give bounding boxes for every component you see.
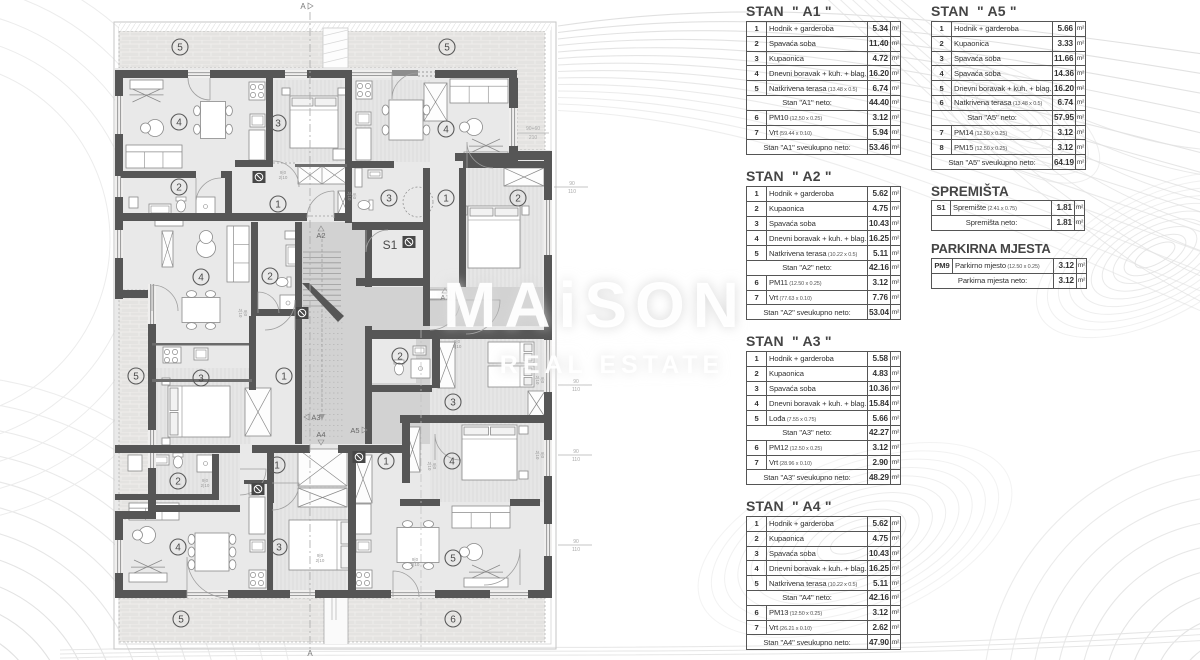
svg-text:1: 1 (274, 461, 280, 472)
svg-text:A2: A2 (316, 231, 325, 240)
svg-text:2: 2 (267, 272, 273, 283)
svg-text:5: 5 (444, 43, 450, 54)
svg-text:4: 4 (443, 125, 449, 136)
svg-text:REAL ESTATE: REAL ESTATE (500, 351, 724, 379)
svg-text:5: 5 (133, 372, 139, 383)
svg-text:2|10: 2|10 (279, 175, 288, 180)
svg-text:110: 110 (572, 547, 580, 553)
svg-text:A5: A5 (350, 426, 359, 435)
svg-text:3: 3 (198, 374, 204, 385)
svg-text:110: 110 (572, 387, 580, 393)
svg-text:2|10: 2|10 (238, 309, 243, 318)
svg-text:S1: S1 (383, 238, 398, 252)
svg-text:3: 3 (275, 119, 281, 130)
svg-text:3: 3 (450, 398, 456, 409)
svg-text:110: 110 (572, 457, 580, 463)
svg-text:1: 1 (275, 200, 281, 211)
svg-text:A3: A3 (311, 413, 320, 422)
svg-text:110: 110 (568, 189, 576, 195)
svg-text:3: 3 (276, 543, 282, 554)
svg-text:3: 3 (386, 194, 392, 205)
svg-text:4: 4 (198, 273, 204, 284)
svg-text:5: 5 (178, 615, 184, 626)
svg-text:2|10: 2|10 (453, 344, 462, 349)
svg-text:4: 4 (449, 457, 455, 468)
svg-text:2|10: 2|10 (411, 562, 420, 567)
svg-text:2: 2 (397, 352, 403, 363)
svg-text:90: 90 (573, 539, 579, 545)
svg-text:210: 210 (529, 135, 538, 141)
svg-text:1: 1 (383, 457, 389, 468)
svg-text:2|10: 2|10 (201, 483, 210, 488)
svg-text:5: 5 (450, 554, 456, 565)
svg-text:90+60: 90+60 (526, 126, 540, 132)
svg-text:2: 2 (515, 194, 521, 205)
svg-text:2: 2 (175, 477, 181, 488)
svg-text:1: 1 (281, 372, 287, 383)
svg-text:A: A (307, 649, 313, 658)
svg-text:90: 90 (573, 449, 579, 455)
svg-text:6: 6 (450, 615, 456, 626)
svg-text:90: 90 (573, 379, 579, 385)
svg-text:2|10: 2|10 (427, 462, 432, 471)
svg-text:2|10: 2|10 (535, 451, 540, 460)
svg-text:2|10: 2|10 (316, 558, 325, 563)
svg-text:1: 1 (443, 194, 449, 205)
svg-text:4: 4 (176, 118, 182, 129)
svg-text:5: 5 (177, 43, 183, 54)
svg-text:A4: A4 (316, 430, 325, 439)
svg-text:MAiSON: MAiSON (443, 269, 747, 341)
svg-text:A: A (300, 2, 306, 11)
svg-text:4: 4 (175, 543, 181, 554)
svg-text:2: 2 (176, 183, 182, 194)
svg-text:2|10: 2|10 (347, 192, 352, 201)
svg-text:90: 90 (569, 181, 575, 187)
